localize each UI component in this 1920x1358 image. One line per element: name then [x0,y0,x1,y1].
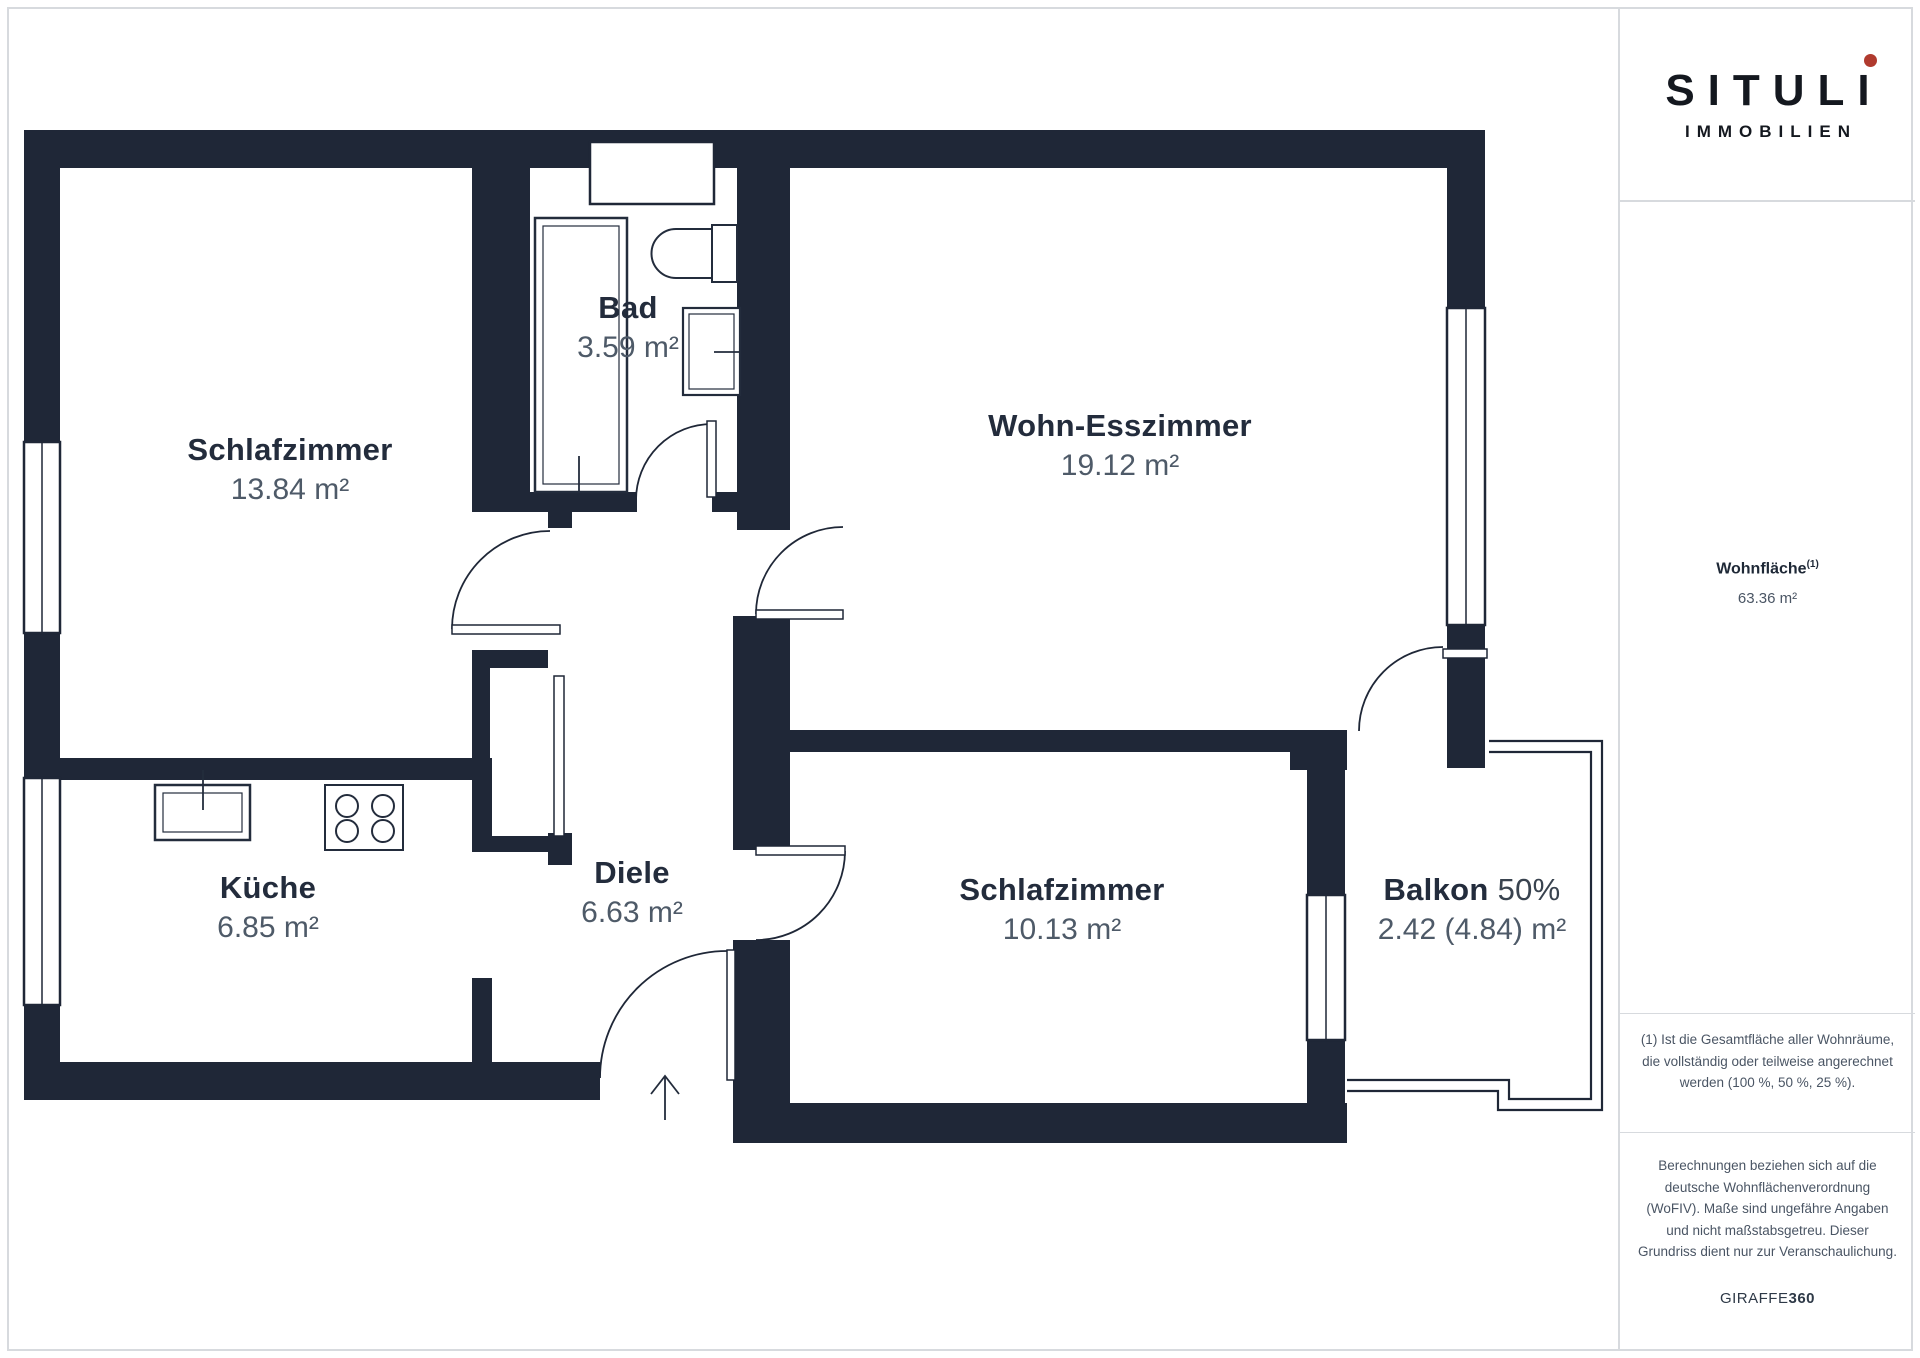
footnote-marker: (1) [1807,559,1819,570]
room-name: Wohn-Esszimmer [988,408,1252,444]
room-name: Bad [577,290,679,326]
door-icon-wohnzimmer [756,527,843,619]
living-area-label: Wohnfläche(1) [1620,559,1915,578]
entrance-arrow-icon [651,1076,679,1120]
divider [1620,1132,1915,1133]
door-icon-schlafzimmer1 [452,531,560,634]
balkon-percentage: 50% [1498,872,1561,907]
floorplan-page: Schlafzimmer 13.84 m² Bad 3.59 m² Wohn-E… [0,0,1920,1358]
window-icon-wohnzimmer [1447,308,1485,625]
room-area: 10.13 m² [959,913,1164,947]
room-name: Küche [217,870,319,906]
room-label-kueche: Küche 6.85 m² [217,870,319,945]
stove-icon [325,785,403,850]
logo-subtitle: IMMOBILIEN [1652,122,1882,142]
room-label-balkon: Balkon50% 2.42 (4.84) m² [1378,872,1566,947]
divider [1620,1013,1915,1014]
room-area: 13.84 m² [187,473,392,507]
sidebar: SITULI IMMOBILIEN Wohnfläche(1) 63.36 m²… [1618,7,1915,1351]
bathroom-sink-icon [683,308,740,395]
kitchen-sink-icon [155,770,250,840]
room-name: Schlafzimmer [959,872,1164,908]
room-area: 2.42 (4.84) m² [1378,913,1566,947]
window-icon-schlafzimmer1 [24,442,60,633]
company-logo: SITULI IMMOBILIEN [1652,66,1882,142]
logo-dot-icon [1864,54,1877,67]
toilet-icon [652,225,738,282]
window-icon-schlafzimmer2 [1307,895,1345,1040]
living-area-summary: Wohnfläche(1) 63.36 m² [1620,559,1915,607]
logo-wordmark: SITULI [1652,66,1882,115]
window-icon-kueche [24,778,60,1005]
living-area-value: 63.36 m² [1620,590,1915,607]
door-icon-kueche [554,676,564,836]
room-area: 19.12 m² [988,449,1252,483]
window-icon-bad [590,142,714,204]
disclaimer-text: Berechnungen beziehen sich auf die deuts… [1637,1155,1899,1263]
footnote-text: (1) Ist die Gesamtfläche aller Wohnräume… [1637,1029,1899,1094]
walls [24,130,1485,1143]
room-label-wohn-esszimmer: Wohn-Esszimmer 19.12 m² [988,408,1252,483]
giraffe360-brand: GIRAFFE360 [1620,1290,1915,1307]
room-name: Diele [581,855,683,891]
room-area: 6.63 m² [581,896,683,930]
room-label-schlafzimmer-2: Schlafzimmer 10.13 m² [959,872,1164,947]
room-label-bad: Bad 3.59 m² [577,290,679,365]
door-icon-bad [636,421,716,500]
room-name: Balkon50% [1378,872,1566,908]
door-icon-schlafzimmer2 [756,846,845,940]
room-area: 3.59 m² [577,331,679,365]
room-label-schlafzimmer-1: Schlafzimmer 13.84 m² [187,432,392,507]
room-area: 6.85 m² [217,911,319,945]
logo-box: SITULI IMMOBILIEN [1620,7,1915,202]
room-name: Schlafzimmer [187,432,392,468]
door-icon-entrance [600,950,735,1080]
room-label-diele: Diele 6.63 m² [581,855,683,930]
